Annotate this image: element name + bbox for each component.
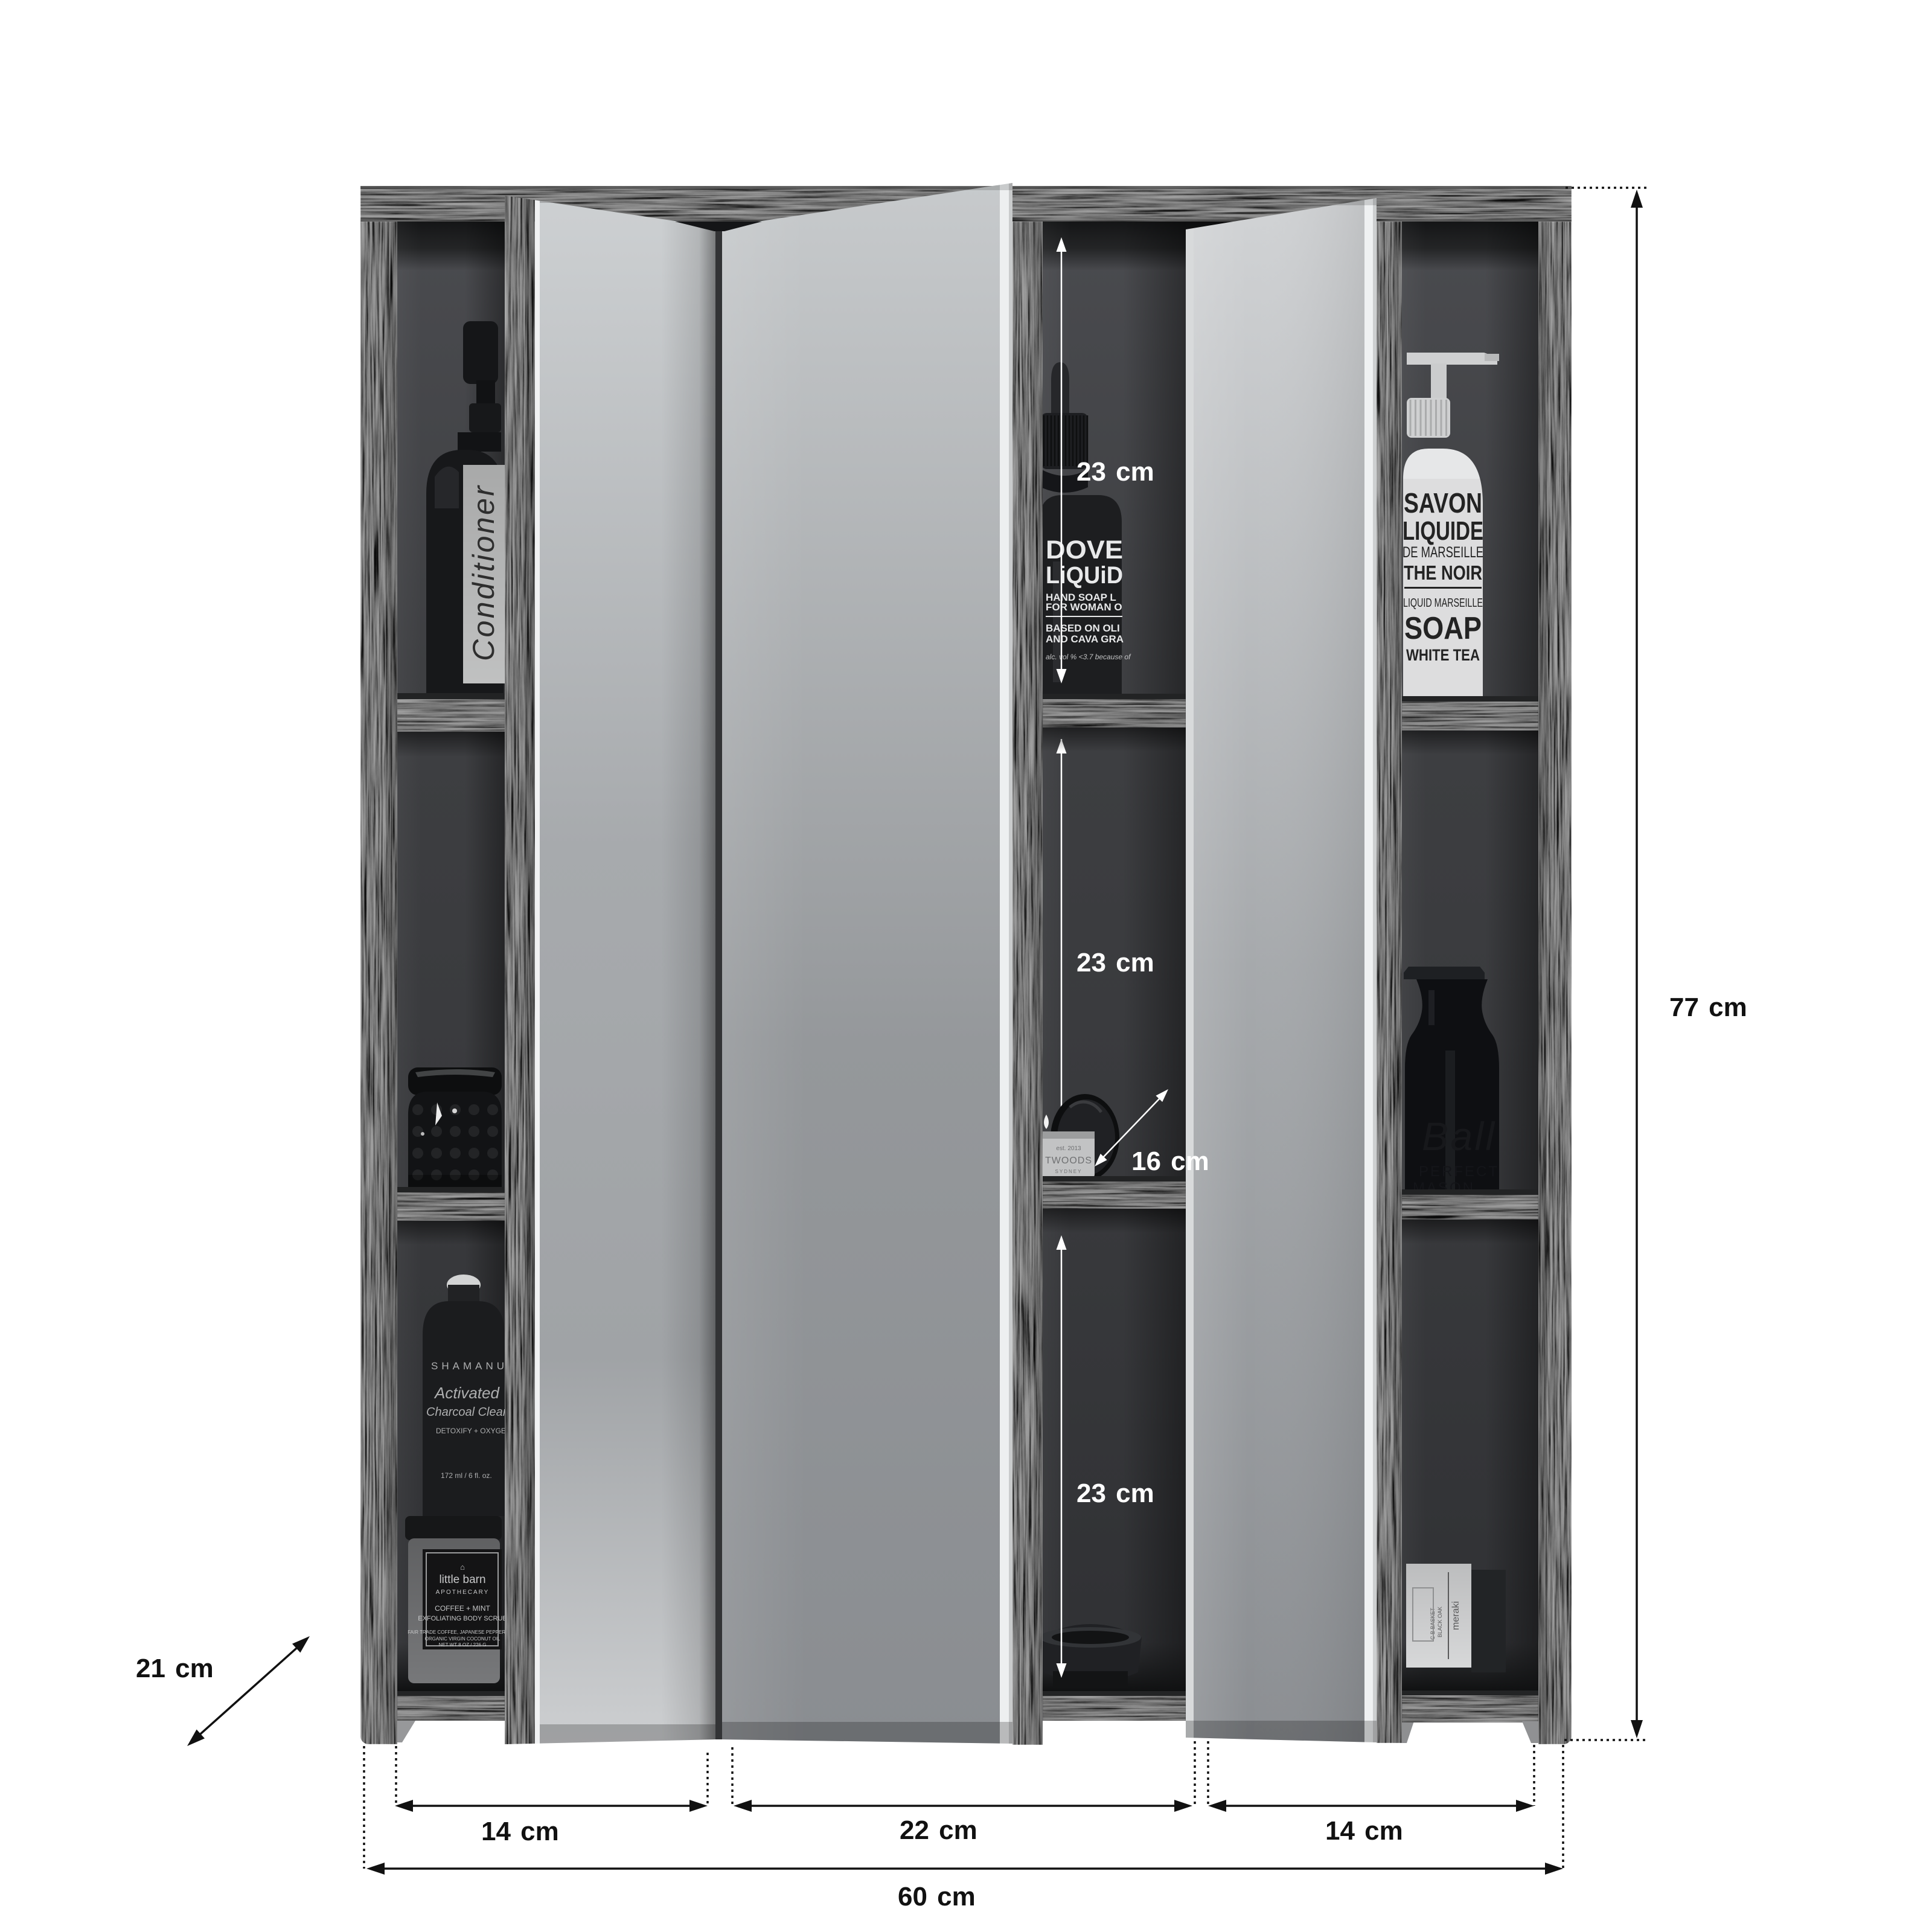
svg-text:23 cm: 23 cm xyxy=(1076,948,1154,977)
svg-text:SYDNEY: SYDNEY xyxy=(1055,1169,1083,1174)
svg-text:22 cm: 22 cm xyxy=(900,1815,977,1845)
svg-text:DE MARSEILLE: DE MARSEILLE xyxy=(1403,544,1483,561)
svg-text:EXFOLIATING BODY SCRUB: EXFOLIATING BODY SCRUB xyxy=(418,1615,507,1622)
svg-text:16 cm: 16 cm xyxy=(1131,1147,1209,1176)
svg-text:ORGANIC VIRGIN COCONUT OIL: ORGANIC VIRGIN COCONUT OIL xyxy=(425,1636,501,1642)
svg-text:Activated: Activated xyxy=(433,1384,500,1402)
svg-text:alc. vol % <3.7 because of: alc. vol % <3.7 because of xyxy=(1046,653,1131,661)
svg-text:⌂: ⌂ xyxy=(460,1563,465,1572)
svg-text:AND CAVA GRA: AND CAVA GRA xyxy=(1046,633,1124,645)
svg-text:NET WT 8 OZ / 226 G: NET WT 8 OZ / 226 G xyxy=(439,1642,487,1648)
svg-text:14 cm: 14 cm xyxy=(1325,1816,1403,1846)
svg-text:PERFECT: PERFECT xyxy=(1419,1163,1499,1180)
svg-text:meraki: meraki xyxy=(1451,1601,1461,1630)
svg-text:21 cm: 21 cm xyxy=(136,1654,214,1683)
svg-text:WHITE TEA: WHITE TEA xyxy=(1406,646,1480,664)
svg-text:BASED ON OLI: BASED ON OLI xyxy=(1046,622,1120,634)
svg-text:TWOODS: TWOODS xyxy=(1045,1156,1092,1166)
svg-text:APOTHECARY: APOTHECARY xyxy=(436,1589,490,1596)
svg-text:23 cm: 23 cm xyxy=(1076,1479,1154,1508)
svg-text:LIQUIDE: LIQUIDE xyxy=(1403,516,1483,546)
svg-text:77 cm: 77 cm xyxy=(1669,993,1747,1022)
svg-text:LiQUiD: LiQUiD xyxy=(1046,562,1123,589)
svg-text:SAVON: SAVON xyxy=(1404,487,1482,519)
svg-text:THE NOIR: THE NOIR xyxy=(1404,561,1482,584)
svg-text:COFFEE + MINT: COFFEE + MINT xyxy=(435,1604,490,1613)
svg-text:LIQUID MARSEILLE: LIQUID MARSEILLE xyxy=(1403,597,1483,610)
svg-text:14 cm: 14 cm xyxy=(481,1817,559,1846)
svg-text:SOAP: SOAP xyxy=(1404,611,1482,646)
svg-text:DOVE: DOVE xyxy=(1046,536,1123,565)
svg-text:BLACK OAK: BLACK OAK xyxy=(1437,1607,1443,1637)
svg-text:172 ml / 6 fl. oz.: 172 ml / 6 fl. oz. xyxy=(441,1471,492,1480)
svg-text:little barn: little barn xyxy=(439,1573,485,1586)
svg-text:FOR WOMAN O: FOR WOMAN O xyxy=(1046,601,1122,613)
svg-text:60 cm: 60 cm xyxy=(898,1882,976,1911)
svg-text:FAIR TRADE COFFEE, JAPANESE PE: FAIR TRADE COFFEE, JAPANESE PEPPERMINT xyxy=(408,1630,517,1635)
svg-text:est. 2013: est. 2013 xyxy=(1056,1145,1081,1152)
svg-text:23 cm: 23 cm xyxy=(1076,457,1154,487)
